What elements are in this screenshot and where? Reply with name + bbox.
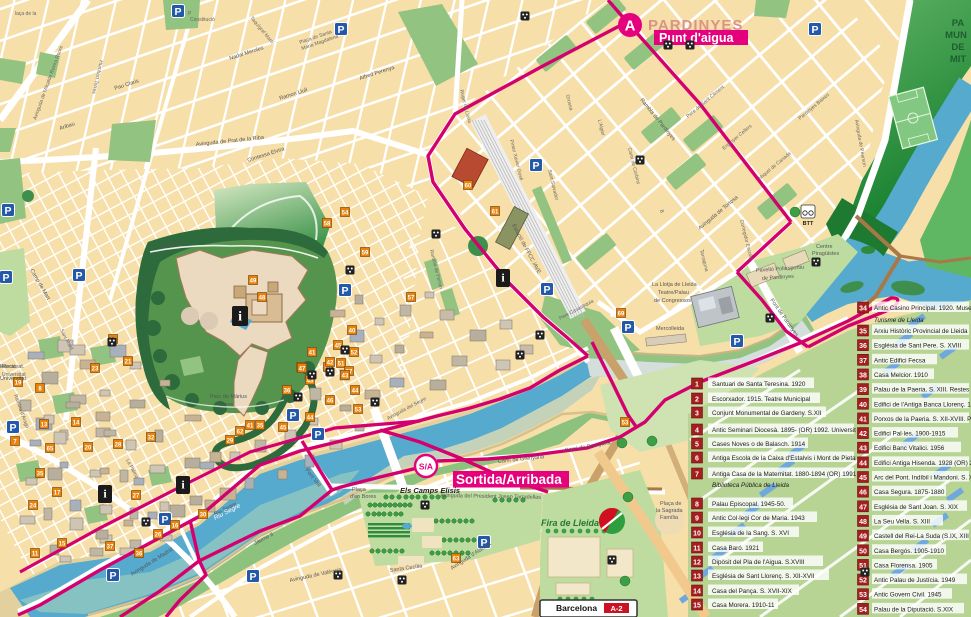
svg-text:26: 26 [155,532,162,538]
svg-text:49: 49 [250,278,257,284]
svg-text:36: 36 [136,551,143,557]
svg-text:Teatre/Palau: Teatre/Palau [658,290,689,296]
svg-text:10: 10 [693,531,701,538]
svg-text:Casa Bergós. 1905-1910: Casa Bergós. 1905-1910 [874,548,945,555]
svg-text:43: 43 [342,373,349,379]
svg-text:Edifici Antiga Hisenda. 1928 (: Edifici Antiga Hisenda. 1928 (OR) 2003 [874,460,971,467]
svg-text:14: 14 [693,589,701,596]
svg-text:P: P [733,336,740,348]
svg-text:Porxos de la Paeria. S. XII-XV: Porxos de la Paeria. S. XII-XVIII. Pilar… [874,416,971,423]
svg-text:Antic Casino Principal. 1920.: Antic Casino Principal. 1920. Museu d'Ar… [874,305,971,312]
svg-text:44: 44 [352,388,359,394]
svg-text:P: P [532,160,539,172]
svg-text:29: 29 [227,438,234,444]
svg-text:37: 37 [859,358,867,365]
svg-text:17: 17 [54,490,61,496]
svg-text:9: 9 [695,516,699,523]
svg-text:La Seu Vella. S. XIII: La Seu Vella. S. XIII [874,518,930,525]
svg-text:Universitat: Universitat [2,372,26,378]
svg-text:11: 11 [32,551,39,557]
svg-text:Escorxador. 1915. Teatre Munic: Escorxador. 1915. Teatre Municipal [712,396,810,403]
svg-text:Conjunt Monumental de Gardeny.: Conjunt Monumental de Gardeny. S.XII [712,410,822,417]
svg-text:Edifici de l'Antiga Banca Llor: Edifici de l'Antiga Banca Llorenç. 1930 [874,401,971,408]
svg-text:7: 7 [695,472,699,479]
svg-text:Família: Família [660,515,679,521]
svg-text:P: P [341,285,348,297]
svg-text:P: P [314,429,321,441]
svg-text:Parc de Màrius: Parc de Màrius [210,394,247,400]
svg-text:A-2: A-2 [610,604,622,613]
svg-text:Palau de la Paeria. S. XIII. R: Palau de la Paeria. S. XIII. Restes Monu… [874,387,971,394]
svg-text:3: 3 [695,411,699,418]
svg-text:Dipòsit del Pla de l'Aigua. S.: Dipòsit del Pla de l'Aigua. S.XVIII [712,559,805,566]
svg-text:DE: DE [951,42,964,53]
svg-text:1: 1 [695,382,699,389]
svg-text:53: 53 [355,407,362,413]
svg-text:57: 57 [408,295,415,301]
svg-text:MUN: MUN [945,30,967,41]
svg-text:58: 58 [324,221,331,227]
svg-text:MIT: MIT [950,54,967,65]
svg-text:Antiga Escola de la Caixa d'Es: Antiga Escola de la Caixa d'Estalvis i M… [712,455,875,462]
svg-text:P: P [161,514,168,526]
svg-text:P: P [337,24,344,36]
svg-text:44: 44 [307,415,314,421]
svg-text:47: 47 [859,504,867,511]
svg-text:41: 41 [859,416,867,423]
svg-text:Antic Col·legi Cor de Maria. 1: Antic Col·legi Cor de Maria. 1943 [712,515,805,522]
svg-text:Arxiu Històric Provincial de L: Arxiu Històric Provincial de Lleida [874,328,968,335]
svg-text:Fira de Lleida: Fira de Lleida [541,518,599,528]
svg-text:Església de Sant Pere. S. XVII: Església de Sant Pere. S. XVIII [874,343,961,350]
svg-text:53: 53 [859,592,867,599]
svg-text:48: 48 [859,519,867,526]
svg-text:13: 13 [693,574,701,581]
svg-text:49: 49 [859,534,867,541]
svg-text:Casa Morera. 1910-11: Casa Morera. 1910-11 [712,602,775,609]
svg-text:13: 13 [41,422,48,428]
svg-text:P: P [543,284,550,296]
svg-text:28: 28 [115,442,122,448]
svg-text:35: 35 [37,471,44,477]
svg-text:Església de Sant Joan. S. XIX: Església de Sant Joan. S. XIX [874,504,959,511]
svg-text:P: P [811,24,818,36]
svg-text:P: P [174,6,181,18]
svg-text:46: 46 [859,490,867,497]
svg-text:42: 42 [327,360,334,366]
svg-text:40: 40 [859,402,867,409]
svg-text:P: P [624,322,631,334]
svg-text:2: 2 [695,397,699,404]
svg-text:Edifici Banc Vitalici. 1956: Edifici Banc Vitalici. 1956 [874,445,945,452]
svg-text:BTT: BTT [803,221,814,227]
svg-text:S/A: S/A [419,462,433,472]
svg-text:27: 27 [133,493,140,499]
svg-text:Casa Florensa. 1905: Casa Florensa. 1905 [874,562,933,569]
svg-text:36: 36 [284,388,291,394]
svg-text:48: 48 [259,295,266,301]
svg-text:35: 35 [257,423,264,429]
svg-text:Palau Episcopal. 1945-50.: Palau Episcopal. 1945-50. [712,501,786,508]
svg-text:32: 32 [148,435,155,441]
svg-text:34: 34 [859,306,867,313]
svg-text:8: 8 [695,502,699,509]
svg-text:47: 47 [299,366,306,372]
svg-text:20: 20 [85,445,92,451]
svg-text:5: 5 [695,442,699,449]
svg-text:38: 38 [859,372,867,379]
svg-text:Castell del Rei-La Suda (S.IX,: Castell del Rei-La Suda (S.IX, XIII i XI… [874,533,971,540]
svg-text:P: P [109,570,116,582]
svg-text:42: 42 [859,431,867,438]
svg-text:la Sagrada: la Sagrada [656,508,684,514]
svg-text:21: 21 [125,359,132,365]
svg-text:65: 65 [47,446,54,452]
svg-text:Antic Edifici Fecsa: Antic Edifici Fecsa [874,357,926,364]
svg-text:Plaça: Plaça [352,487,367,493]
svg-text:59: 59 [362,250,369,256]
svg-text:36: 36 [859,343,867,350]
svg-text:40: 40 [349,328,356,334]
svg-text:Casa Segura. 1875-1880: Casa Segura. 1875-1880 [874,489,945,496]
svg-text:6: 6 [695,456,699,463]
svg-text:46: 46 [327,398,334,404]
svg-text:Barcelona: Barcelona [556,603,597,613]
svg-text:Antic Palau de Justícia. 1949: Antic Palau de Justícia. 1949 [874,577,956,584]
svg-text:d'en Bores: d'en Bores [350,494,376,500]
svg-text:P: P [249,571,256,583]
svg-text:Mercolleida: Mercolleida [656,326,685,332]
svg-text:14: 14 [73,420,80,426]
svg-text:16: 16 [172,523,179,529]
svg-text:A: A [625,18,636,35]
svg-text:41: 41 [309,350,316,356]
svg-text:51: 51 [338,361,345,367]
svg-text:12: 12 [693,560,701,567]
svg-text:de Congressos: de Congressos [654,298,691,304]
svg-text:Església de la Sang. S. XVI: Església de la Sang. S. XVI [712,530,789,537]
svg-text:Arc del Pont. Indíbil i Mandon: Arc del Pont. Indíbil i Mandoni. S. XVII… [874,475,971,482]
svg-text:Piragüistes: Piragüistes [812,251,839,257]
svg-text:50: 50 [859,548,867,555]
svg-text:Biblioteca Pública de Lleida: Biblioteca Pública de Lleida [712,482,790,489]
svg-text:11: 11 [693,546,701,553]
svg-text:Torres: Torres [218,402,234,408]
svg-text:39: 39 [859,387,867,394]
svg-text:P: P [4,205,11,217]
svg-text:44: 44 [859,460,867,467]
svg-text:PA: PA [952,18,965,29]
svg-text:61: 61 [492,209,499,215]
svg-text:52: 52 [351,350,358,356]
svg-text:i: i [238,310,242,325]
svg-text:45: 45 [280,425,287,431]
svg-text:62: 62 [237,429,244,435]
svg-text:Sortida/Arribada: Sortida/Arribada [456,472,562,487]
svg-text:Palau de la Diputació. S.XIX: Palau de la Diputació. S.XIX [874,606,954,613]
svg-text:Els Camps Elisis: Els Camps Elisis [400,486,460,495]
svg-text:Casa Melcior. 1910: Casa Melcior. 1910 [874,372,928,379]
svg-text:Casa Baró. 1921: Casa Baró. 1921 [712,545,760,552]
svg-text:30: 30 [200,512,207,518]
svg-text:53: 53 [622,420,629,426]
svg-text:4: 4 [695,428,699,435]
svg-text:54: 54 [342,210,349,216]
svg-text:Centre: Centre [816,244,833,250]
svg-text:Cases Noves o de Balasch. 1914: Cases Noves o de Balasch. 1914 [712,441,806,448]
svg-text:24: 24 [30,503,37,509]
svg-text:43: 43 [859,446,867,453]
svg-text:35: 35 [859,329,867,336]
svg-text:Edifici Pal·les. 1900-1915: Edifici Pal·les. 1900-1915 [874,431,946,438]
svg-text:P: P [9,422,16,434]
svg-text:37: 37 [107,544,114,550]
svg-text:15: 15 [693,603,701,610]
svg-text:La Llotja de Lleida: La Llotja de Lleida [652,282,698,288]
svg-text:Plaça de: Plaça de [660,501,681,507]
svg-text:60: 60 [465,183,472,189]
svg-text:Església de Sant Llorenç. S. X: Església de Sant Llorenç. S. XII-XVII [712,573,815,580]
svg-text:41: 41 [247,423,254,429]
svg-text:P: P [75,270,82,282]
svg-text:15: 15 [59,541,66,547]
svg-text:Antic Govern Civil. 1945: Antic Govern Civil. 1945 [874,592,942,599]
svg-text:69: 69 [618,311,625,317]
svg-text:Turisme de Lleida: Turisme de Lleida [874,317,924,324]
svg-text:Santuari de Santa Teresina. 19: Santuari de Santa Teresina. 1920 [712,381,806,388]
svg-text:P: P [2,272,9,284]
svg-text:45: 45 [859,475,867,482]
svg-text:23: 23 [92,366,99,372]
svg-text:Casa del Pança. S. XVII-XIX: Casa del Pança. S. XVII-XIX [712,588,793,595]
svg-text:54: 54 [859,607,867,614]
svg-text:Antiga Casa de la Maternitat.: Antiga Casa de la Maternitat. 1880-1894 … [712,471,873,478]
svg-text:P: P [289,410,296,422]
svg-text:Constitució: Constitució [190,17,215,23]
svg-text:52: 52 [859,578,867,585]
svg-text:Rectorat.: Rectorat. [0,364,17,370]
